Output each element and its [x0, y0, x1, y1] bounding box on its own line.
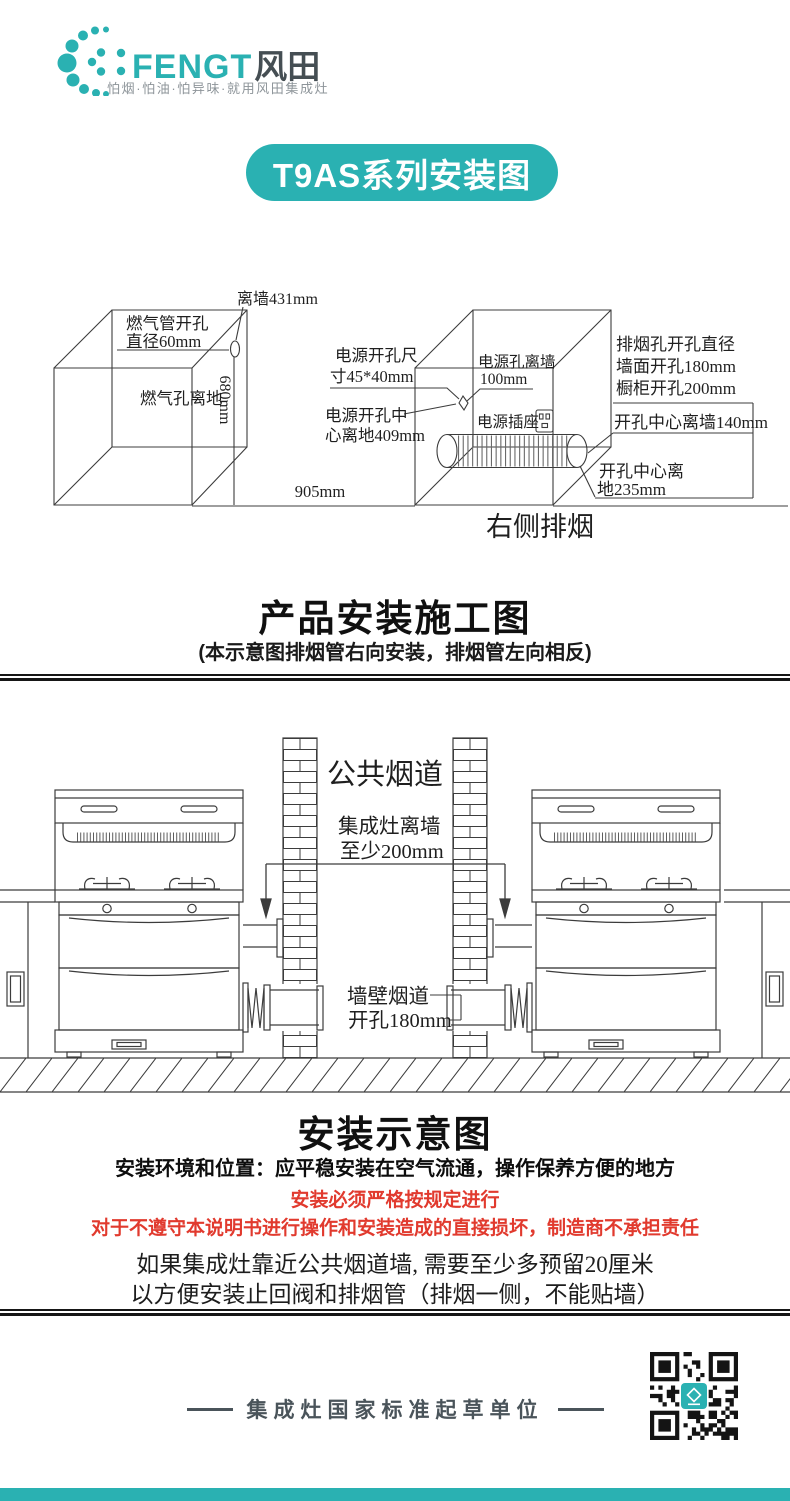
- label-height-680: 680mm: [216, 376, 233, 425]
- label-gas-hole-2: 直径60mm: [126, 332, 201, 351]
- label-vent-3: 橱柜开孔200mm: [616, 379, 736, 398]
- label-power-center-2: 心离地409mm: [325, 426, 425, 445]
- label-gas-hole-1: 燃气管开孔: [126, 314, 209, 333]
- brand-logo: FENGT 风田 怕烟·怕油·怕异味·就用风田集成灶: [55, 24, 355, 96]
- caption-right-exhaust: 右侧排烟: [486, 512, 594, 542]
- slogan-text: 集成灶国家标准起草单位: [247, 1394, 544, 1424]
- gas-hole: [231, 341, 240, 357]
- wall-duct-opening-left: [281, 984, 319, 1031]
- wall-duct-opening-right: [451, 984, 489, 1031]
- slogan-dash-left: [187, 1408, 233, 1411]
- construction-subtitle: (本示意图排烟管右向安装，排烟管左向相反): [0, 636, 790, 665]
- label-power-center-1: 电源开孔中: [325, 406, 408, 425]
- ground-hatch: [0, 1058, 790, 1092]
- installation-title: 安装示意图: [0, 1104, 790, 1158]
- label-width-905: 905mm: [295, 482, 346, 501]
- note-line-1: 如果集成灶靠近公共烟道墙, 需要至少多预留20厘米: [0, 1245, 790, 1279]
- power-hole: [459, 396, 468, 410]
- label-wall-431: 离墙431mm: [237, 290, 318, 308]
- installation-drawing: 公共烟道 集成灶离墙 至少200mm 墙壁烟道 开孔180mm: [0, 700, 790, 1100]
- label-distance-1: 集成灶离墙: [338, 815, 441, 838]
- label-vent-2: 墙面开孔180mm: [616, 357, 736, 376]
- construction-title: 产品安装施工图: [0, 588, 790, 642]
- divider-rule-2: [0, 1309, 790, 1316]
- footer-slogan: 集成灶国家标准起草单位: [0, 1394, 790, 1424]
- label-gas-floor: 燃气孔离地: [140, 389, 223, 408]
- label-distance-2: 至少200mm: [340, 840, 444, 863]
- series-banner-title: T9AS系列安装图: [273, 149, 531, 197]
- series-banner: T9AS系列安装图: [246, 144, 558, 201]
- label-socket: 电源插座: [477, 413, 539, 431]
- label-power-size-1: 电源开孔尺: [335, 346, 418, 365]
- note-environment: 安装环境和位置：应平稳安装在空气流通，操作保养方便的地方: [0, 1152, 790, 1181]
- footer-teal-bar: [0, 1488, 790, 1501]
- page: FENGT 风田 怕烟·怕油·怕异味·就用风田集成灶 T9AS系列安装图 离墙4…: [0, 0, 790, 1501]
- label-wall-duct-2: 开孔180mm: [348, 1009, 452, 1032]
- divider-rule-1: [0, 674, 790, 681]
- warning-line-1: 安装必须严格按规定进行: [0, 1185, 790, 1212]
- brand-tagline: 怕烟·怕油·怕异味·就用风田集成灶: [107, 78, 329, 97]
- label-vent-1: 排烟孔开孔直径: [616, 335, 735, 354]
- label-power-wall-1: 电源孔离墙: [478, 353, 556, 371]
- exhaust-duct: [437, 435, 587, 468]
- warning-line-2: 对于不遵守本说明书进行操作和安装造成的直接损坏，制造商不承担责任: [0, 1213, 790, 1240]
- label-vent-center-floor-1: 开孔中心离: [599, 462, 684, 481]
- label-vent-center-wall: 开孔中心离墙140mm: [614, 413, 768, 432]
- label-power-size-2: 寸45*40mm: [330, 367, 414, 386]
- slogan-dash-right: [558, 1408, 604, 1411]
- label-chimney: 公共烟道: [327, 758, 443, 791]
- label-wall-duct-1: 墙壁烟道: [347, 985, 429, 1008]
- label-power-wall-2: 100mm: [480, 371, 527, 388]
- note-line-2: 以方便安装止回阀和排烟管（排烟一侧，不能贴墙）: [0, 1275, 790, 1309]
- label-vent-center-floor-2: 地235mm: [597, 480, 666, 499]
- integrated-stove-right: [532, 790, 720, 1057]
- construction-drawing: 离墙431mm 燃气管开孔 直径60mm 燃气孔离地 680mm 905mm: [0, 270, 790, 562]
- integrated-stove-left: [55, 790, 243, 1057]
